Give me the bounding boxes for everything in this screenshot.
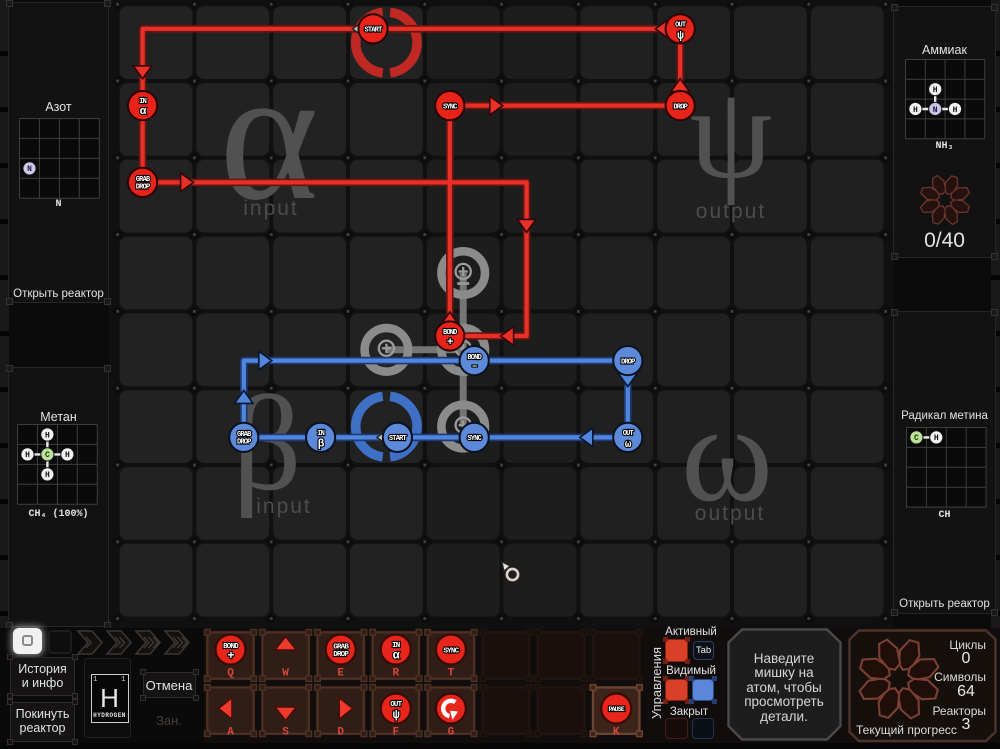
svg-text:OUT: OUT: [675, 21, 686, 29]
svg-text:C: C: [914, 434, 919, 443]
svg-text:D: D: [337, 727, 344, 739]
svg-text:DROP: DROP: [136, 184, 150, 192]
svg-text:W: W: [282, 668, 289, 680]
svg-text:IN: IN: [139, 98, 146, 106]
svg-text:input: input: [243, 197, 299, 220]
svg-text:SYNC: SYNC: [443, 647, 459, 655]
svg-text:H: H: [953, 105, 958, 114]
svg-text:N: N: [933, 105, 938, 114]
svg-text:ψ: ψ: [690, 59, 773, 206]
svg-text:F: F: [392, 727, 399, 739]
svg-text:BOND: BOND: [467, 354, 481, 362]
svg-text:H: H: [45, 432, 50, 441]
svg-text:DROP: DROP: [333, 651, 349, 659]
svg-text:IN: IN: [317, 430, 324, 438]
svg-text:H: H: [65, 452, 70, 461]
svg-text:START: START: [364, 27, 382, 35]
svg-text:H: H: [25, 452, 30, 461]
svg-text:Q: Q: [227, 668, 234, 680]
svg-text:S: S: [282, 727, 289, 739]
svg-text:A: A: [227, 727, 234, 739]
svg-text:G: G: [448, 727, 455, 739]
svg-text:DROP: DROP: [621, 358, 635, 366]
svg-text:R: R: [392, 668, 399, 680]
svg-text:output: output: [695, 502, 765, 525]
svg-text:K: K: [613, 727, 620, 739]
svg-text:H: H: [913, 105, 918, 114]
svg-text:GRAB: GRAB: [333, 643, 349, 651]
svg-text:E: E: [337, 668, 344, 680]
svg-text:C: C: [45, 452, 50, 461]
svg-text:DROP: DROP: [237, 439, 251, 447]
svg-text:START: START: [389, 435, 407, 443]
svg-text:H: H: [933, 434, 938, 443]
svg-text:α: α: [393, 650, 400, 663]
svg-text:N: N: [27, 165, 32, 174]
svg-text:H: H: [933, 85, 938, 94]
svg-text:+: +: [227, 650, 234, 663]
svg-text:SYNC: SYNC: [443, 103, 457, 111]
svg-text:SYNC: SYNC: [467, 435, 481, 443]
svg-text:output: output: [696, 200, 766, 223]
svg-text:ψ: ψ: [393, 709, 400, 722]
svg-text:–: –: [472, 362, 478, 373]
svg-text:BOND: BOND: [443, 329, 457, 337]
svg-text:T: T: [448, 668, 455, 680]
svg-text:H: H: [45, 472, 50, 481]
svg-text:input: input: [256, 495, 312, 518]
svg-text:OUT: OUT: [390, 701, 402, 709]
svg-text:DROP: DROP: [673, 103, 687, 111]
svg-text:OUT: OUT: [623, 430, 634, 438]
